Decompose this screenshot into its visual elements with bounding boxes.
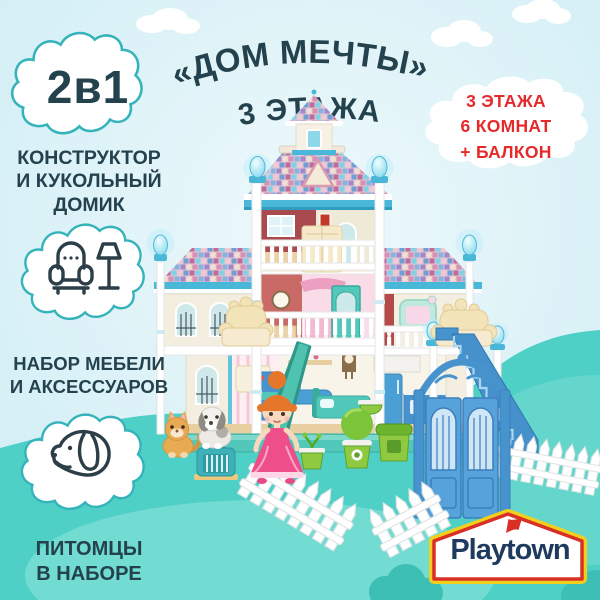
- features-text: 3 ЭТАЖА 6 КОМНАТ + БАЛКОН: [430, 89, 582, 165]
- wall-clock: [273, 292, 290, 309]
- furniture-label: НАБОР МЕБЕЛИ И АКСЕССУАРОВ: [0, 352, 178, 398]
- constructor-label: КОНСТРУКТОР И КУКОЛЬНЫЙ ДОМИК: [0, 147, 178, 217]
- pets-label: ПИТОМЦЫ В НАБОРЕ: [0, 537, 178, 587]
- brand-name: Playtown: [436, 534, 584, 567]
- product-card: «ДОМ МЕЧТЫ» 3 ЭТАЖА: [0, 0, 600, 600]
- trash-bin: [376, 424, 412, 461]
- badge-2in1-text: 2в1: [10, 60, 166, 114]
